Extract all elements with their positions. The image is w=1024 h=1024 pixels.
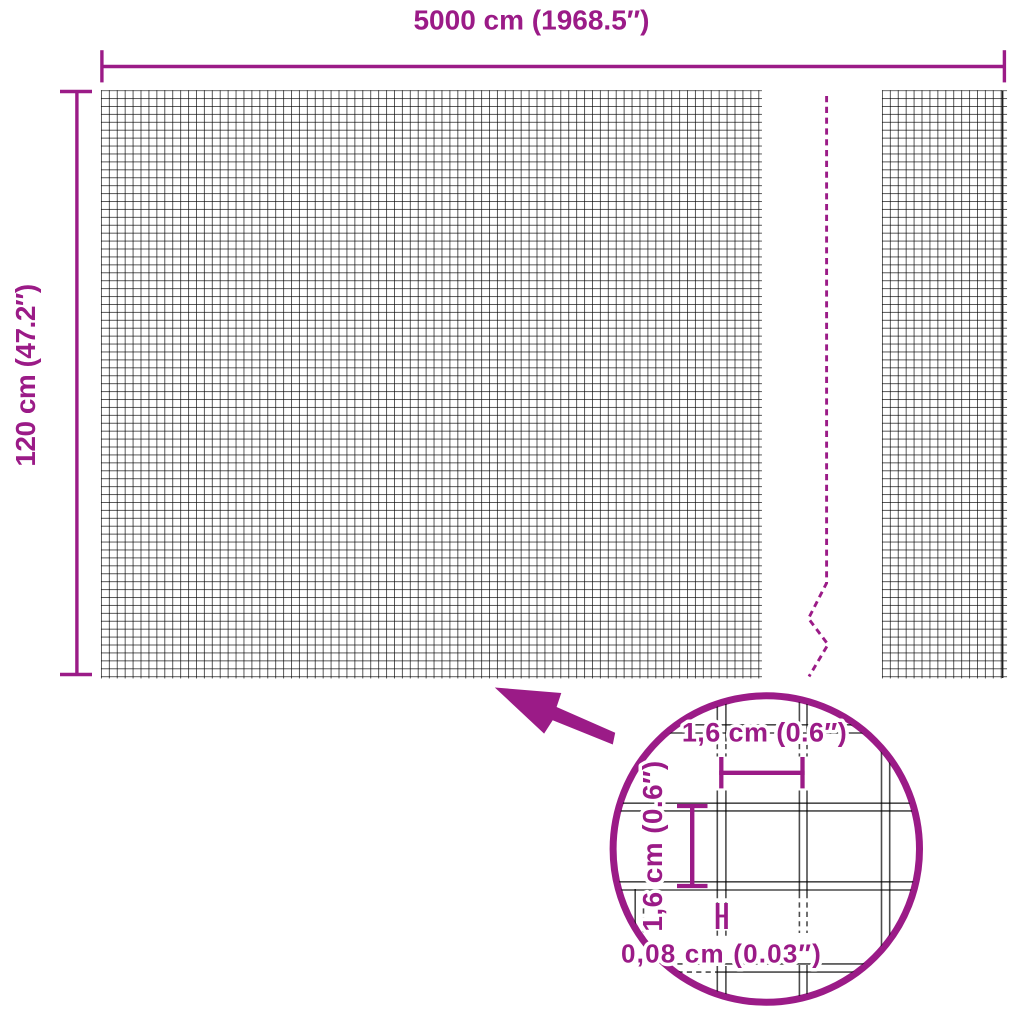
svg-text:1,6 cm (0.6″): 1,6 cm (0.6″) xyxy=(637,760,668,931)
svg-text:1,6 cm (0.6″): 1,6 cm (0.6″) xyxy=(682,718,847,748)
svg-text:0,08 cm (0.03″): 0,08 cm (0.03″) xyxy=(621,939,822,969)
svg-text:120 cm (47.2″): 120 cm (47.2″) xyxy=(10,284,41,466)
svg-text:5000 cm (1968.5″): 5000 cm (1968.5″) xyxy=(413,4,649,35)
